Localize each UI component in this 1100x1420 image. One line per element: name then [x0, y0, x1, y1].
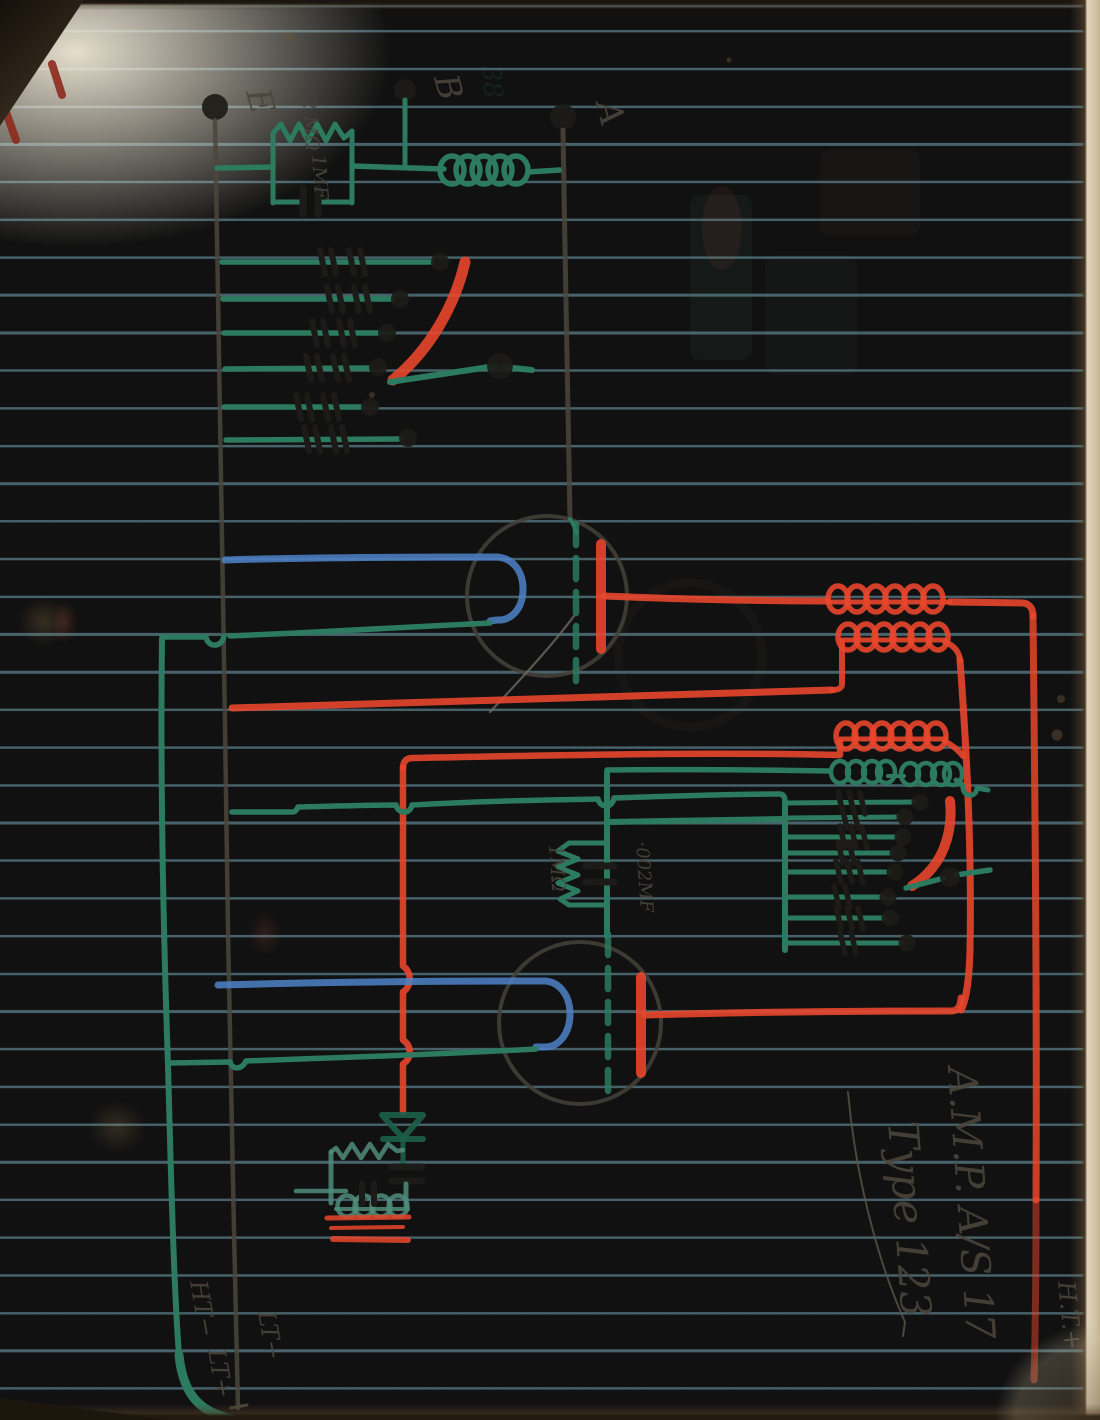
valve-1 [162, 516, 828, 712]
ghost-numerals: 38 [475, 64, 508, 100]
valve-1-filament [225, 557, 523, 621]
valve-2-filament [218, 981, 570, 1047]
terminal-a-dot [550, 104, 576, 130]
earth-symbol [327, 1217, 409, 1240]
detector-feed [403, 768, 410, 1112]
page-right-edge [1070, 0, 1100, 1420]
grid-capacitor-label: ·002MF [631, 841, 657, 915]
green-secondary-winding [607, 761, 988, 795]
red-coil-3 [836, 723, 946, 749]
page-bottom-edge [0, 1404, 1100, 1420]
circuit-drawing: 38 [0, 0, 1100, 1420]
tap-switch-1 [222, 250, 532, 451]
red-drop-wire [403, 742, 840, 768]
red-coil-2 [838, 624, 948, 650]
crystal-diode [382, 1115, 423, 1138]
detector-cluster [296, 1115, 423, 1240]
small-capacitor-plates [362, 1183, 374, 1204]
terminal-e-dot [202, 94, 228, 120]
terminal-a-label: A [587, 93, 633, 130]
terminal-e-label: E [237, 83, 282, 118]
top-resistor-label: ·2 MΩ [297, 91, 323, 152]
grid-leak-network [232, 772, 785, 936]
output-resistor-zigzag [331, 1144, 403, 1158]
red-coil-1 [828, 586, 950, 612]
tap-contact-marks [296, 250, 370, 451]
handwritten-annotations: E B A ·2 MΩ 1MF 1MΩ ·002MF A.M.P. A/S 17… [184, 69, 1087, 1400]
wiper-pivot-dot [487, 353, 513, 379]
tap-switch-2 [785, 792, 990, 953]
grid-leak-resistor-label: 1MΩ [544, 844, 569, 893]
aerial-coil [440, 156, 528, 184]
wiper-pivot-dot [940, 867, 960, 887]
top-capacitor-label: 1MF [307, 154, 332, 201]
valve-2 [170, 934, 961, 1104]
annotation-line2: Type 123 [878, 1119, 941, 1319]
notebook-page: 38 [0, 0, 1100, 1420]
lt-plus-label: LT+ [202, 1345, 238, 1400]
page-top-edge [0, 0, 1100, 10]
anode-riser [960, 660, 970, 1010]
lt-minus-label: LT− [252, 1307, 288, 1362]
ht-minus-label: HT− [184, 1277, 222, 1339]
terminal-b-label: B [425, 69, 470, 104]
terminal-e-lt-minus-rail [202, 94, 247, 1408]
wiper-travel-arc [393, 262, 465, 380]
page-corner-bottom-right [970, 1300, 1100, 1420]
terminal-a-stem [563, 130, 570, 518]
reservoir-capacitor-plates [392, 1167, 422, 1181]
ht-plus-rail [1033, 616, 1036, 1200]
